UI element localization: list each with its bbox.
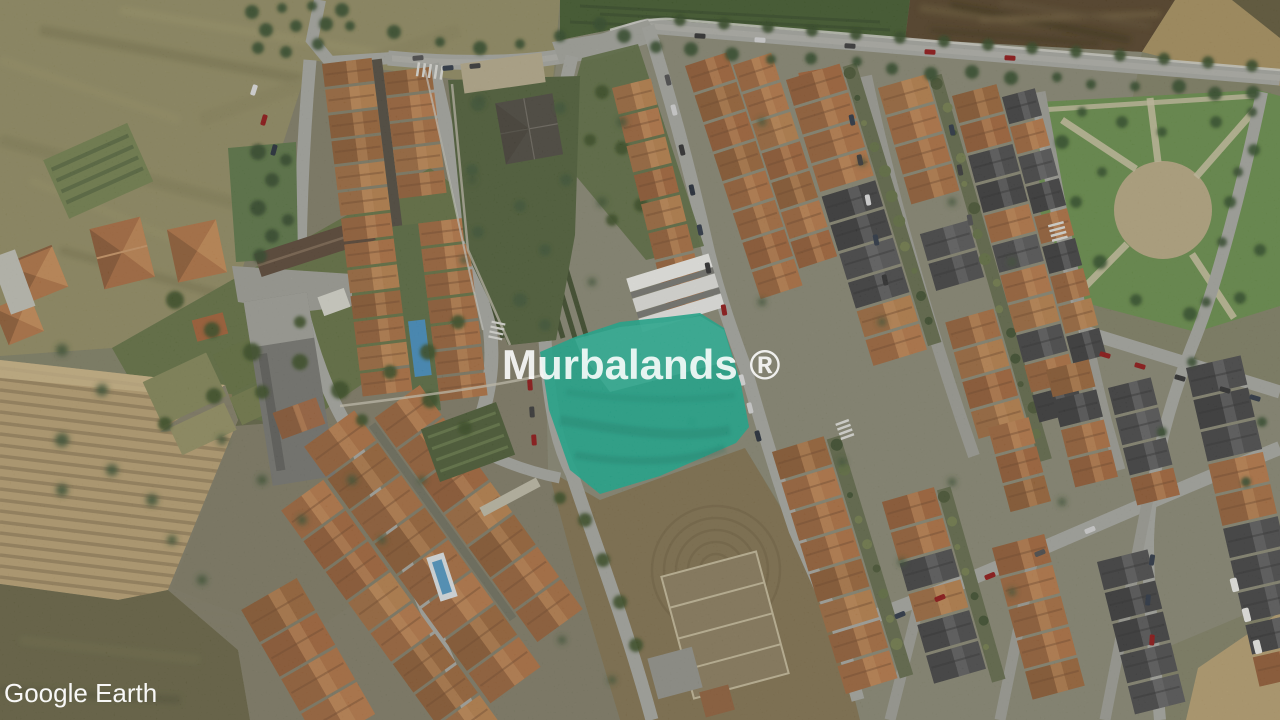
svg-text:Google Earth: Google Earth [4, 678, 157, 708]
svg-text:Murbalands ®: Murbalands ® [502, 341, 780, 388]
